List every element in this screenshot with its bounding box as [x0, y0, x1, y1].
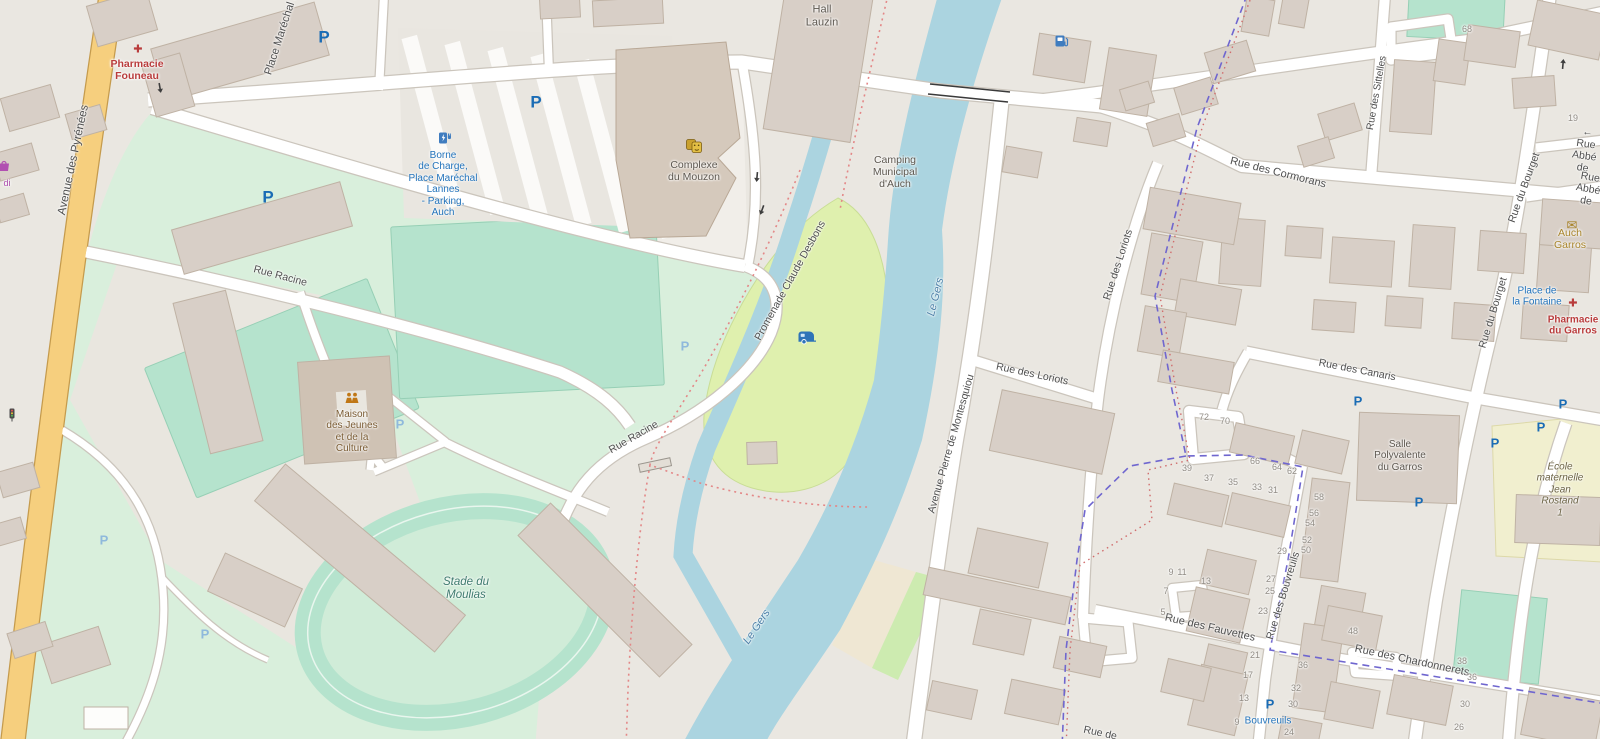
building [1390, 60, 1437, 135]
building [1033, 33, 1091, 83]
building [1385, 296, 1423, 328]
building [747, 441, 778, 464]
building [540, 0, 581, 19]
building [1329, 237, 1394, 287]
building [1536, 243, 1591, 293]
building-mjc-courtyard [336, 390, 368, 426]
building [1312, 300, 1356, 333]
map-canvas[interactable]: Avenue des PyrénéesPlace Maréchal Lannes… [0, 0, 1600, 739]
pitch-southeast [1453, 590, 1548, 685]
building [1356, 412, 1459, 503]
building [1452, 303, 1496, 342]
building [1515, 495, 1600, 546]
building [1285, 226, 1323, 258]
building [1539, 199, 1600, 249]
building [1521, 302, 1569, 341]
building [1512, 76, 1556, 109]
building [1073, 117, 1110, 146]
building [1464, 25, 1521, 68]
building [84, 707, 128, 729]
building [1409, 225, 1455, 290]
building [1278, 0, 1309, 28]
map-base-svg [0, 0, 1600, 739]
building [592, 0, 663, 27]
building [1478, 230, 1527, 273]
building [1241, 0, 1275, 36]
building [1433, 39, 1471, 85]
building [1002, 146, 1042, 178]
